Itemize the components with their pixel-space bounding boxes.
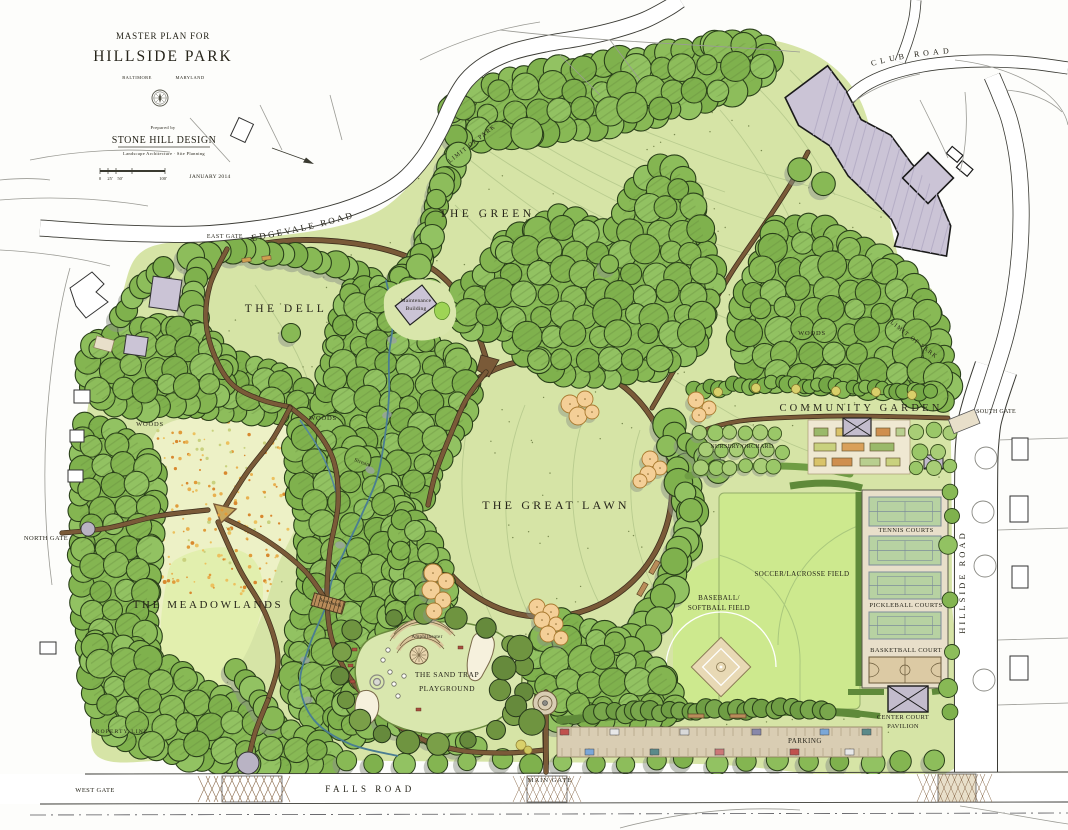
svg-text:THE SAND TRAP: THE SAND TRAP xyxy=(415,670,479,679)
svg-text:THE DELL: THE DELL xyxy=(245,303,328,315)
svg-text:MARYLAND: MARYLAND xyxy=(176,75,205,80)
svg-text:THE GREAT LAWN: THE GREAT LAWN xyxy=(482,498,630,512)
svg-text:SOFTBALL FIELD: SOFTBALL FIELD xyxy=(688,604,750,612)
svg-text:WOODS: WOODS xyxy=(798,330,826,337)
svg-text:50': 50' xyxy=(117,176,123,181)
svg-text:COMMUNITY GARDEN: COMMUNITY GARDEN xyxy=(779,403,942,414)
svg-text:100': 100' xyxy=(159,176,167,181)
svg-text:WEST GATE: WEST GATE xyxy=(75,787,114,794)
svg-text:PAVILION: PAVILION xyxy=(887,723,919,730)
svg-text:STONE HILL DESIGN: STONE HILL DESIGN xyxy=(112,135,217,146)
svg-text:NURSERY/ORCHARD: NURSERY/ORCHARD xyxy=(710,444,774,450)
svg-text:JANUARY 2014: JANUARY 2014 xyxy=(189,174,230,180)
svg-text:THE GREEN: THE GREEN xyxy=(439,208,534,220)
svg-text:SOUTH GATE: SOUTH GATE xyxy=(976,409,1016,415)
svg-text:BALTIMORE: BALTIMORE xyxy=(122,75,151,80)
svg-text:WOODS: WOODS xyxy=(136,421,164,428)
svg-text:Amphitheater: Amphitheater xyxy=(411,635,442,640)
svg-text:FALLS ROAD: FALLS ROAD xyxy=(325,784,415,794)
svg-text:THE MEADOWLANDS: THE MEADOWLANDS xyxy=(133,599,284,611)
svg-text:Building: Building xyxy=(406,306,427,312)
svg-text:TENNIS COURTS: TENNIS COURTS xyxy=(878,527,933,534)
svg-text:HILLSIDE PARK: HILLSIDE PARK xyxy=(93,48,233,65)
svg-text:EAST GATE: EAST GATE xyxy=(207,234,243,240)
svg-text:Prepared by: Prepared by xyxy=(151,125,176,130)
svg-text:HILLSIDE ROAD: HILLSIDE ROAD xyxy=(957,530,967,633)
svg-text:SOCCER/LACROSSE FIELD: SOCCER/LACROSSE FIELD xyxy=(755,570,850,578)
svg-text:PLAYGROUND: PLAYGROUND xyxy=(419,684,475,693)
svg-text:CENTER COURT: CENTER COURT xyxy=(877,714,929,721)
svg-text:Landscape Architecture · Site: Landscape Architecture · Site Planning xyxy=(123,151,205,156)
svg-text:BASEBALL/: BASEBALL/ xyxy=(698,594,740,602)
svg-text:25': 25' xyxy=(107,176,113,181)
svg-text:NORTH GATE: NORTH GATE xyxy=(24,535,68,542)
svg-text:WOODS: WOODS xyxy=(309,415,337,422)
svg-text:BASKETBALL COURT: BASKETBALL COURT xyxy=(870,647,942,654)
svg-text:Maintenance: Maintenance xyxy=(401,298,432,304)
svg-text:PROPERTY LINE: PROPERTY LINE xyxy=(91,729,148,735)
svg-text:PICKLEBALL COURTS: PICKLEBALL COURTS xyxy=(869,602,942,609)
svg-text:MASTER PLAN FOR: MASTER PLAN FOR xyxy=(116,31,210,41)
svg-text:PARKING: PARKING xyxy=(788,737,822,745)
svg-text:MAIN GATE: MAIN GATE xyxy=(528,777,573,784)
